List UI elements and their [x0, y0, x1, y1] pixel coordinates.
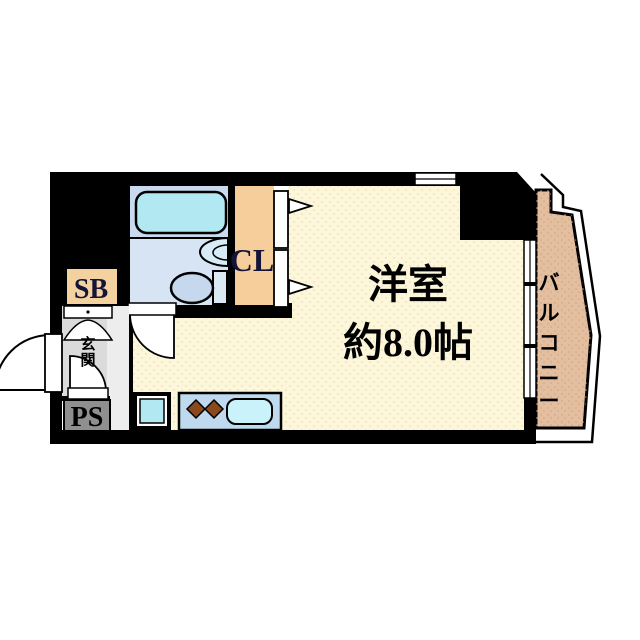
entrance-inner-door-leaf: [68, 388, 108, 399]
bathtub-icon: [136, 192, 226, 233]
right-window-tick-2: [524, 344, 536, 348]
left-wall: [50, 172, 62, 444]
room-size-label: 約8.0帖: [343, 320, 473, 365]
balcony-label-char-5: ー: [539, 389, 560, 413]
top-window: [415, 173, 456, 185]
balcony-label-char-4: ニ: [539, 361, 560, 385]
closet-door-panel-bottom: [274, 250, 288, 307]
balcony-label-char-3: コ: [539, 331, 560, 355]
room-name-label: 洋室: [368, 262, 448, 307]
balcony-label: バ ル コ ニ ー: [539, 271, 560, 413]
floorplan-canvas: 洋室 約8.0帖 CL SB PS バ ル コ ニ ー 玄 関: [0, 0, 640, 640]
corner-wall-block: [460, 172, 536, 240]
shoebox-door-pivot: [86, 310, 89, 313]
bathroom-door-leaf: [128, 303, 176, 315]
kitchen-sink-icon: [227, 399, 272, 424]
toilet-tank: [213, 271, 227, 304]
toilet-icon: [171, 273, 213, 303]
appliance-space: [140, 399, 164, 423]
entry-door-leaf: [45, 334, 62, 392]
entrance-label-char-1: 玄: [80, 335, 95, 353]
pipe-space-label: PS: [71, 402, 104, 433]
right-window: [524, 240, 536, 398]
balcony-label-char-2: ル: [539, 301, 560, 325]
entrance-label: 玄 関: [80, 335, 95, 369]
balcony-label-char-1: バ: [539, 271, 560, 295]
closet-label: CL: [230, 242, 274, 278]
bottom-wall: [50, 430, 536, 444]
right-window-tick-1: [524, 282, 536, 286]
closet-door-panel-top: [274, 191, 288, 248]
entrance-label-char-2: 関: [80, 352, 95, 369]
hall-room-divider: [129, 318, 133, 430]
shoe-box-label: SB: [74, 274, 108, 305]
